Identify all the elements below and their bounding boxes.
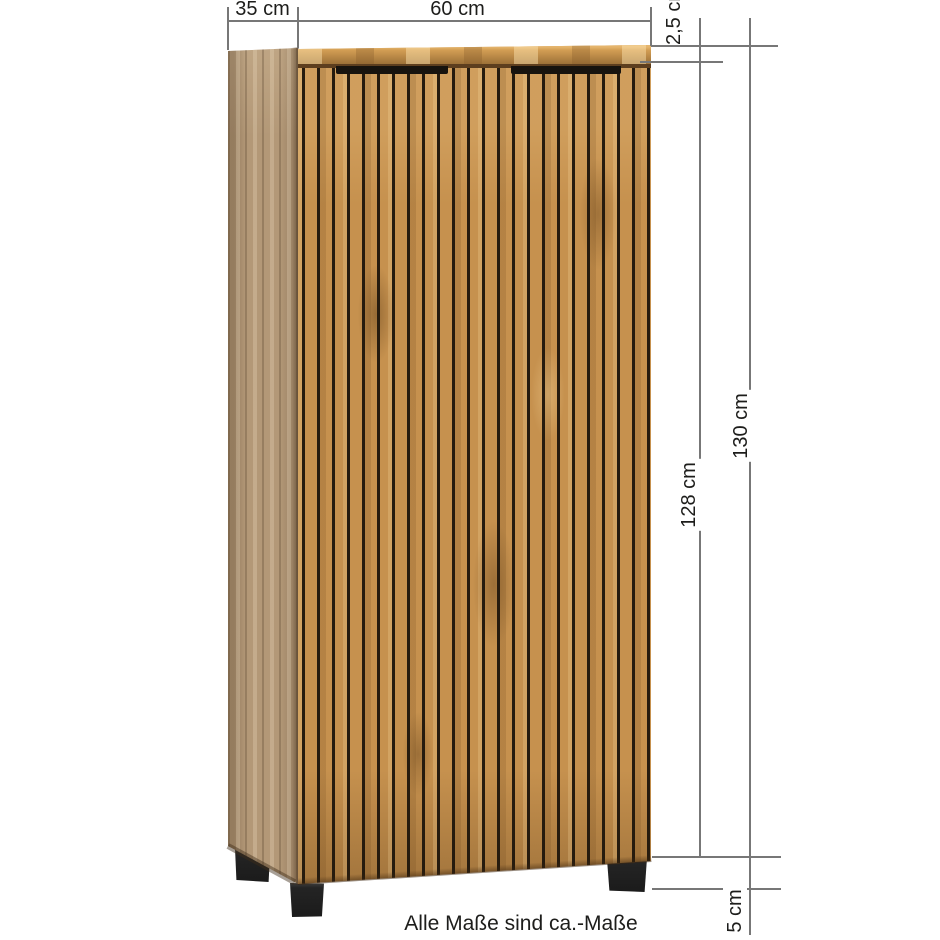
top-thickness-measurement-label: 2,5 cm [662,0,686,48]
cabinet-slatted-front [298,64,651,885]
dim-tick-width-right [650,7,652,46]
depth-measurement-label: 35 cm [227,0,298,19]
dim-line-top-width [227,20,652,22]
dim-line-floor [652,888,781,890]
dim-line-panel-bottom [640,61,723,63]
dim-line-total-height [749,18,751,935]
cabinet-side-panel [228,47,298,885]
width-measurement-label: 60 cm [390,0,525,19]
cabinet-corner-edge [292,47,299,885]
dim-line-body-bottom [652,856,781,858]
body-height-measurement-label: 128 cm [677,459,701,531]
approx-dimensions-caption: Alle Maße sind ca.-Maße [321,912,721,936]
left-door-handle [336,66,448,74]
right-door-handle [511,66,621,74]
cabinet-top-panel [298,45,651,65]
cabinet-foot-front-left [290,883,324,917]
product-dimension-diagram: 35 cm 60 cm 2,5 cm 130 cm 128 cm 5 cm Al… [0,0,940,940]
dim-line-body-height [699,18,701,857]
feet-height-measurement-label: 5 cm [723,886,747,935]
total-height-measurement-label: 130 cm [729,390,753,462]
